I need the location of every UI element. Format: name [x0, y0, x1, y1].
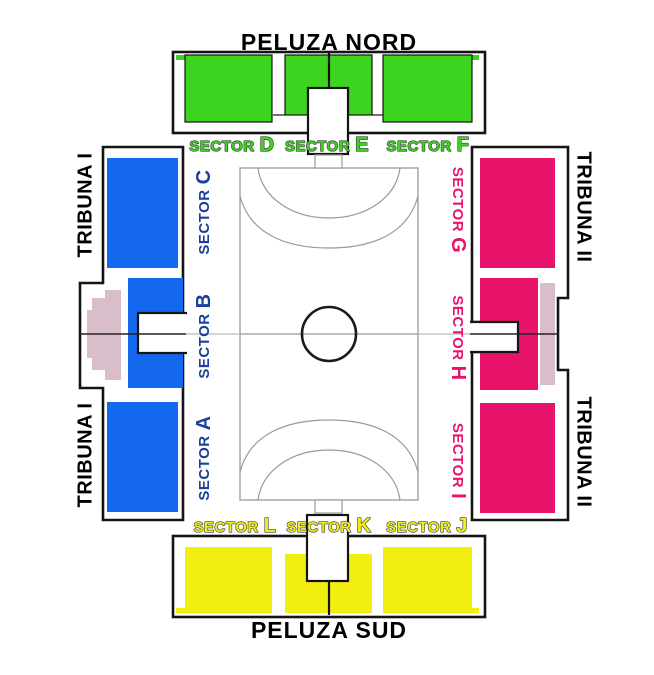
sector-c-block[interactable] [107, 158, 178, 268]
south-goal-box [315, 500, 342, 513]
sector-c-label-prefix: SECTOR [196, 189, 213, 254]
sector-k-label: SECTORK [286, 515, 371, 537]
south-edge-strip-left [176, 608, 186, 613]
sector-g-label-letter: G [447, 237, 469, 253]
north-goal-box [315, 155, 342, 168]
west-stand-title-top: TRIBUNA I [74, 153, 96, 258]
south-stand-title: PELUZA SUD [251, 617, 407, 643]
sector-l-label: SECTORL [194, 515, 277, 537]
north-stand-title: PELUZA NORD [241, 29, 417, 55]
sector-j-label: SECTORJ [386, 515, 468, 537]
sector-g-block[interactable] [480, 158, 555, 268]
sector-i-label-prefix: SECTOR [449, 423, 466, 488]
west-tunnel-gap [138, 313, 187, 353]
sector-a-block[interactable] [107, 402, 178, 512]
sector-l-label-letter: L [264, 515, 277, 537]
sector-e-label-prefix: SECTOR [285, 138, 350, 155]
sector-a-label-prefix: SECTOR [196, 435, 213, 500]
sector-h-label-prefix: SECTOR [449, 295, 466, 360]
sector-e-label-letter: E [355, 134, 369, 156]
sector-b-label-prefix: SECTOR [196, 313, 213, 378]
sector-f-label-letter: F [457, 134, 470, 156]
west-stand-title-bottom: TRIBUNA I [74, 403, 96, 508]
sector-d-block[interactable] [185, 55, 272, 122]
sector-c-label-letter: C [193, 169, 215, 184]
stadium-seating-map: PELUZA NORD PELUZA SUD TRIBUNA I TRIBUNA… [0, 0, 654, 675]
sector-h-label: SECTORH [447, 295, 469, 380]
sector-f-block[interactable] [383, 55, 472, 122]
sector-k-label-letter: K [357, 515, 372, 537]
east-stand-title-top: TRIBUNA II [573, 152, 595, 263]
east-stand-title-bottom: TRIBUNA II [573, 397, 595, 508]
sector-l-block[interactable] [185, 547, 272, 613]
sector-f-label-prefix: SECTOR [387, 138, 452, 155]
sector-a-label: SECTORA [193, 415, 215, 500]
sector-j-block[interactable] [383, 547, 472, 613]
sector-j-label-letter: J [456, 515, 468, 537]
sector-d-label-prefix: SECTOR [189, 138, 254, 155]
sector-g-label: SECTORG [447, 167, 469, 253]
sector-d-label: SECTORD [189, 134, 274, 156]
sector-i-label: SECTORI [447, 423, 469, 499]
sector-l-label-prefix: SECTOR [194, 519, 259, 536]
sector-a-label-letter: A [193, 415, 215, 430]
sector-h-label-letter: H [447, 366, 469, 381]
sector-g-label-prefix: SECTOR [449, 167, 466, 232]
sector-i-block[interactable] [480, 403, 555, 513]
sector-c-label: SECTORC [193, 169, 215, 254]
west-vip-steps [87, 290, 121, 380]
sector-j-label-prefix: SECTOR [386, 519, 451, 536]
sector-d-label-letter: D [260, 134, 275, 156]
sector-k-label-prefix: SECTOR [286, 519, 351, 536]
sector-i-label-letter: I [447, 493, 469, 499]
east-tunnel-gap [470, 322, 518, 352]
sector-b-label-letter: B [193, 293, 215, 308]
sector-b-label: SECTORB [193, 293, 215, 378]
sector-f-label: SECTORF [387, 134, 470, 156]
sector-e-label: SECTORE [285, 134, 369, 156]
